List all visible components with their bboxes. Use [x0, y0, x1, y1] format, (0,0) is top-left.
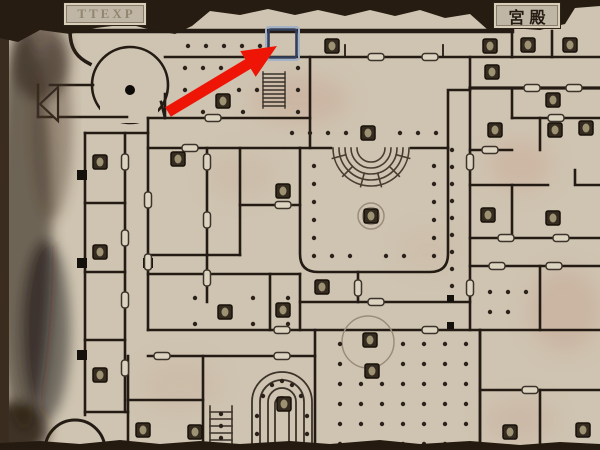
map-tab-right-label: 宮殿 [503, 4, 550, 28]
map-tab-left-label: TTEXP [74, 6, 135, 22]
palace-floor-plan-map [0, 0, 600, 450]
left-edge-border [0, 0, 9, 450]
map-tab-right[interactable]: 宮殿 [493, 2, 561, 29]
map-tab-left[interactable]: TTEXP [63, 2, 147, 26]
game-map-screen: TTEXP 宮殿 [0, 0, 600, 450]
round-room-pillar [125, 85, 135, 95]
